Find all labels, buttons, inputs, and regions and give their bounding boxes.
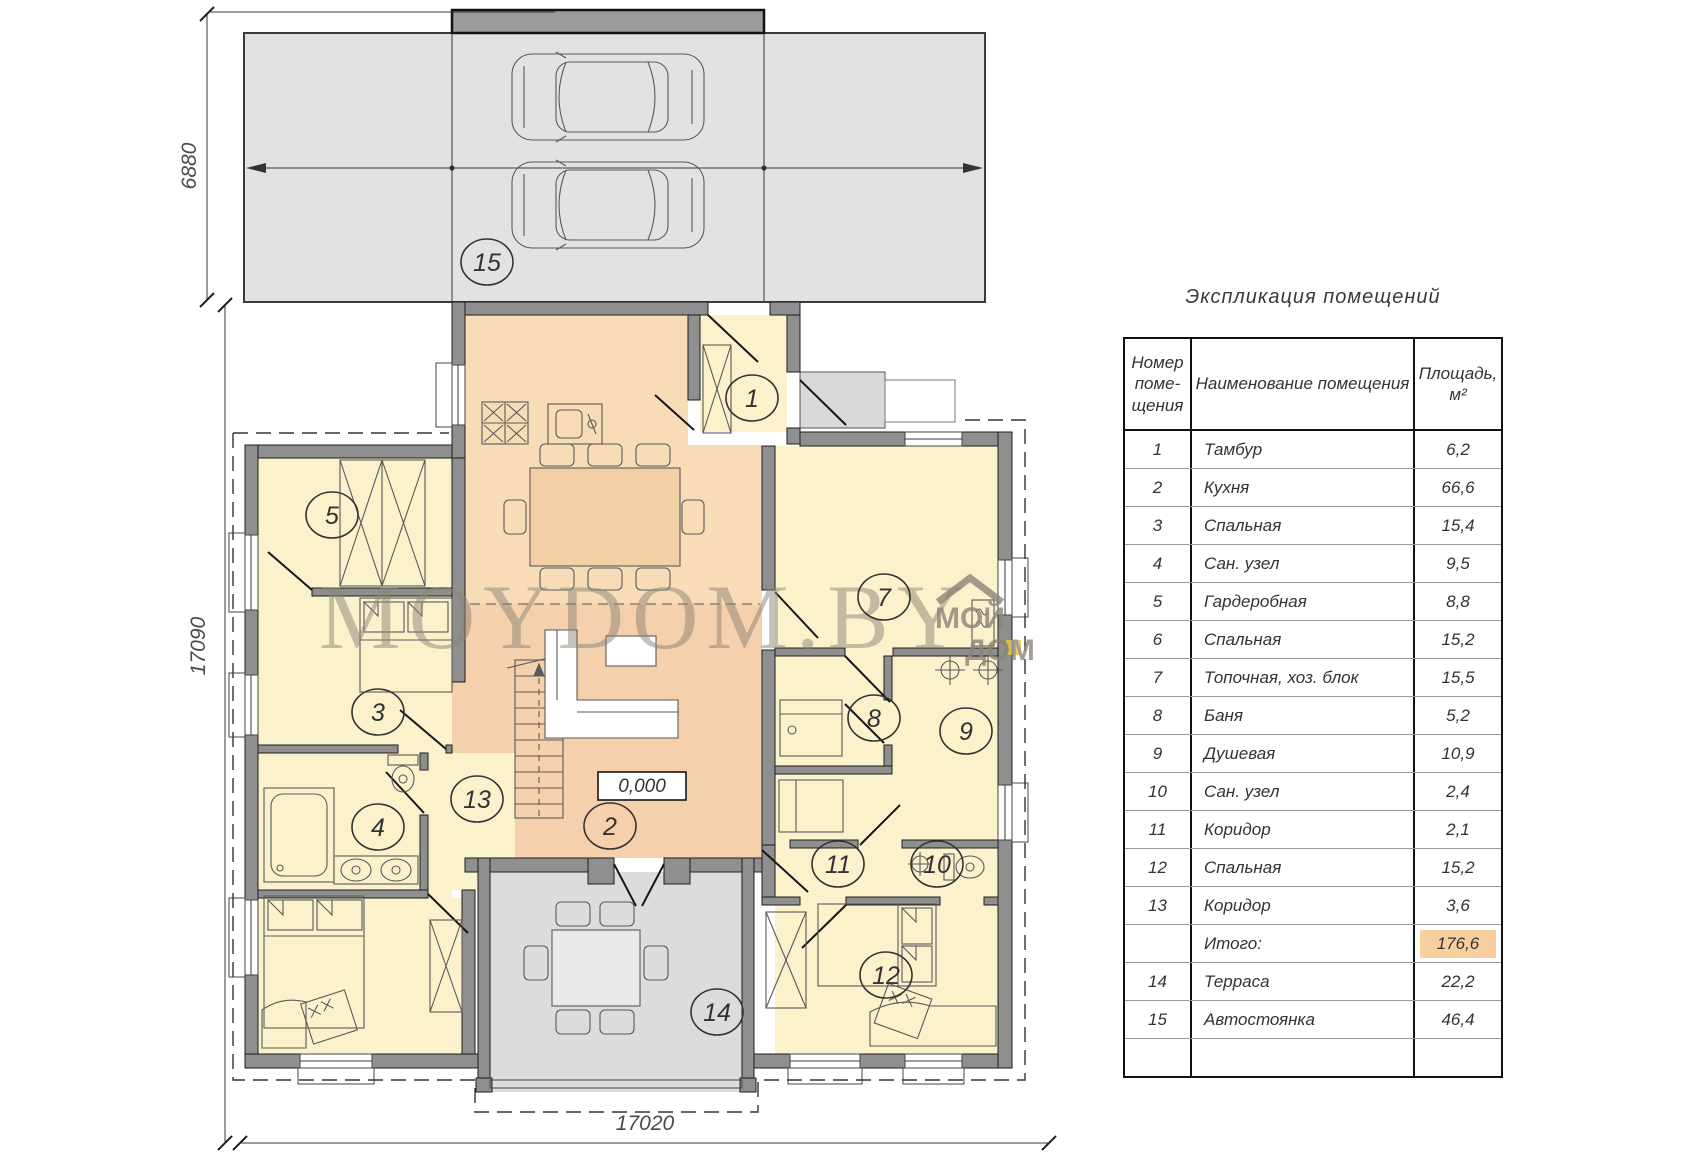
level-marker: 0,000: [598, 772, 686, 800]
table-cell-num: 5: [1125, 583, 1192, 620]
table-row: 4Сан. узел9,5: [1125, 545, 1501, 583]
header-name: Наименование помещения: [1192, 339, 1415, 429]
table-row: 12Спальная15,2: [1125, 849, 1501, 887]
table-cell-num: 6: [1125, 621, 1192, 658]
table-cell-are: 66,6: [1415, 469, 1501, 506]
table-cell-num: 1: [1125, 431, 1192, 468]
table-cell-are: 10,9: [1415, 735, 1501, 772]
table-row: 9Душевая10,9: [1125, 735, 1501, 773]
table-cell-nam: Баня: [1192, 697, 1415, 734]
room-number-label: 10: [923, 851, 951, 879]
table-cell-nam: Коридор: [1192, 887, 1415, 924]
table-row: 2Кухня66,6: [1125, 469, 1501, 507]
table-cell-num: 4: [1125, 545, 1192, 582]
room-vestibule: [700, 315, 787, 432]
logo-line2: ДОМ: [965, 634, 1035, 667]
table-cell-nam: Топочная, хоз. блок: [1192, 659, 1415, 696]
dim-parking-depth: 6880: [178, 142, 201, 189]
room-number-label: 4: [371, 814, 385, 842]
table-row: 6Спальная15,2: [1125, 621, 1501, 659]
svg-text:0,000: 0,000: [618, 776, 666, 797]
table-row: 10Сан. узел2,4: [1125, 773, 1501, 811]
table-cell-are: 9,5: [1415, 545, 1501, 582]
table-cell-num: 10: [1125, 773, 1192, 810]
room-number-label: 11: [825, 851, 851, 879]
table-cell-nam: Гардеробная: [1192, 583, 1415, 620]
table-cell-num: [1125, 925, 1192, 962]
table-cell-are: 22,2: [1415, 963, 1501, 1000]
table-cell-num: 13: [1125, 887, 1192, 924]
table-cell-num: 12: [1125, 849, 1192, 886]
schedule-body: 1Тамбур6,22Кухня66,63Спальная15,44Сан. у…: [1125, 431, 1501, 1076]
header-area: Площадь, м²: [1415, 339, 1501, 429]
porch-step: [885, 380, 955, 422]
floor-plan-sheet: MOYDOM.BY МОЙ ДОМ 0,000 6880 17090 17020…: [0, 0, 1700, 1156]
table-row: 5Гардеробная8,8: [1125, 583, 1501, 621]
table-cell-nam: Душевая: [1192, 735, 1415, 772]
table-cell-num: 9: [1125, 735, 1192, 772]
room-number-label: 3: [371, 699, 385, 727]
table-cell-are: 15,4: [1415, 507, 1501, 544]
room-number-label: 2: [602, 813, 617, 841]
table-cell-are: 15,5: [1415, 659, 1501, 696]
table-header-row: Номер поме- щения Наименование помещения…: [1125, 339, 1501, 431]
table-cell-num: 7: [1125, 659, 1192, 696]
carport-area: [244, 10, 985, 302]
table-cell-num: 11: [1125, 811, 1192, 848]
room-number-label: 12: [872, 962, 900, 990]
entry-porch: [800, 372, 885, 428]
room-number-label: 15: [473, 249, 501, 277]
canopy-roof: [452, 10, 764, 33]
table-cell-are: 15,2: [1415, 621, 1501, 658]
room-number-label: 13: [463, 786, 491, 814]
room-number-label: 1: [745, 385, 759, 413]
dim-house-width: 17020: [616, 1112, 675, 1135]
table-row: 11Коридор2,1: [1125, 811, 1501, 849]
table-cell-num: 3: [1125, 507, 1192, 544]
table-cell-num: 2: [1125, 469, 1192, 506]
table-cell-are: 176,6: [1415, 925, 1501, 962]
table-cell-are: 46,4: [1415, 1001, 1501, 1038]
room-number-label: 8: [867, 705, 881, 733]
table-cell-nam: Терраса: [1192, 963, 1415, 1000]
table-cell-nam: Автостоянка: [1192, 1001, 1415, 1038]
table-cell-are: 5,2: [1415, 697, 1501, 734]
room-number-label: 5: [325, 502, 339, 530]
table-row: 1Тамбур6,2: [1125, 431, 1501, 469]
room-schedule-table: Номер поме- щения Наименование помещения…: [1123, 337, 1503, 1078]
table-cell-nam: Сан. узел: [1192, 773, 1415, 810]
table-row: Итого:176,6: [1125, 925, 1501, 963]
table-cell-are: [1415, 1039, 1501, 1076]
room-number-label: 7: [877, 584, 892, 612]
table-cell-nam: Спальная: [1192, 507, 1415, 544]
table-cell-nam: Спальная: [1192, 849, 1415, 886]
table-row: 15Автостоянка46,4: [1125, 1001, 1501, 1039]
table-cell-num: 8: [1125, 697, 1192, 734]
table-cell-num: 15: [1125, 1001, 1192, 1038]
table-cell-num: [1125, 1039, 1192, 1076]
table-cell-nam: [1192, 1039, 1415, 1076]
table-row: 14Терраса22,2: [1125, 963, 1501, 1001]
table-cell-are: 3,6: [1415, 887, 1501, 924]
total-area-highlight: 176,6: [1420, 930, 1497, 958]
table-row: [1125, 1039, 1501, 1076]
table-cell-are: 8,8: [1415, 583, 1501, 620]
table-cell-nam: Тамбур: [1192, 431, 1415, 468]
table-row: 8Баня5,2: [1125, 697, 1501, 735]
table-cell-nam: Коридор: [1192, 811, 1415, 848]
table-cell-are: 6,2: [1415, 431, 1501, 468]
table-cell-nam: Кухня: [1192, 469, 1415, 506]
table-row: 13Коридор3,6: [1125, 887, 1501, 925]
table-cell-nam: Итого:: [1192, 925, 1415, 962]
table-cell-are: 15,2: [1415, 849, 1501, 886]
table-cell-nam: Спальная: [1192, 621, 1415, 658]
table-cell-are: 2,4: [1415, 773, 1501, 810]
watermark-text: MOYDOM.BY: [319, 566, 971, 668]
table-cell-are: 2,1: [1415, 811, 1501, 848]
room-number-label: 14: [703, 999, 731, 1027]
header-number: Номер поме- щения: [1125, 339, 1192, 429]
table-row: 7Топочная, хоз. блок15,5: [1125, 659, 1501, 697]
schedule-title: Экспликация помещений: [1123, 286, 1503, 309]
stove-icon: [482, 402, 528, 444]
table-cell-nam: Сан. узел: [1192, 545, 1415, 582]
dim-house-depth: 17090: [187, 616, 210, 675]
table-cell-num: 14: [1125, 963, 1192, 1000]
room-number-label: 9: [959, 718, 973, 746]
logo-line1: МОЙ: [935, 601, 1005, 635]
table-row: 3Спальная15,4: [1125, 507, 1501, 545]
